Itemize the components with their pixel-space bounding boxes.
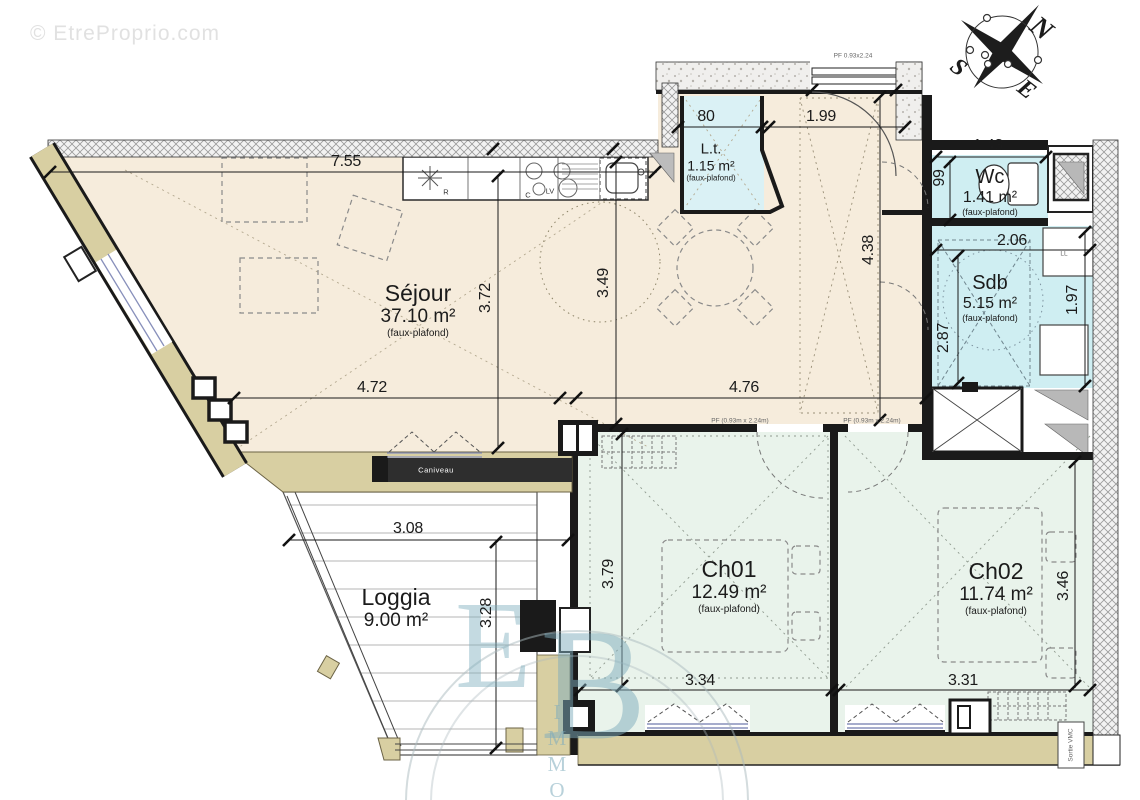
room-name: Loggia (361, 584, 430, 610)
room-area: 12.49 m² (692, 583, 767, 605)
dim-80: 80 (697, 108, 714, 126)
dim-4-76: 4.76 (729, 379, 759, 397)
room-label-lt: L.t. 1.15 m² (faux-plafond) (686, 141, 735, 184)
room-name: Ch01 (692, 556, 767, 582)
washing-machine-label: LL (1060, 251, 1067, 258)
dim-3-49: 3.49 (595, 268, 613, 298)
entry-door-spec-label: PF 0.93x2.24 (834, 53, 873, 60)
floor-plan-page: © EtreProprio.com Séjour 37.10 m² (faux-… (0, 0, 1140, 800)
dim-3-08: 3.08 (393, 520, 423, 538)
room-note: (faux-plafond) (692, 604, 767, 616)
dim-1-99: 1.99 (806, 108, 836, 126)
room-name: Wc (962, 166, 1018, 189)
dim-3-79: 3.79 (600, 559, 618, 589)
room-label-sejour: Séjour 37.10 m² (faux-plafond) (381, 280, 456, 340)
dim-3-31: 3.31 (948, 672, 978, 690)
room-name: Séjour (381, 280, 456, 306)
dim-4-38: 4.38 (860, 235, 878, 265)
room-label-loggia: Loggia 9.00 m² (361, 584, 430, 632)
room-area: 37.10 m² (381, 307, 456, 329)
dim-4-72: 4.72 (357, 379, 387, 397)
room-area: 1.41 m² (962, 189, 1018, 207)
dim-7-55: 7.55 (331, 153, 361, 171)
window-spec-label-2: PF (0.93m x 2.24m) (843, 418, 900, 425)
room-label-ch01: Ch01 12.49 m² (faux-plafond) (692, 556, 767, 616)
room-note: (faux-plafond) (962, 208, 1018, 218)
dim-99: 99 (931, 169, 949, 186)
room-area: 9.00 m² (361, 610, 430, 632)
room-label-ch02: Ch02 11.74 m² (faux-plafond) (959, 558, 1033, 618)
dishwasher-code-label: LV (546, 187, 555, 196)
room-note: (faux-plafond) (962, 314, 1018, 324)
room-name: L.t. (686, 141, 735, 158)
room-area: 11.74 m² (959, 585, 1033, 607)
dim-3-34: 3.34 (685, 672, 715, 690)
site-watermark: © EtreProprio.com (30, 22, 220, 46)
dim-1-43: 1.43 (973, 137, 1003, 155)
room-label-wc: Wc 1.41 m² (faux-plafond) (962, 166, 1018, 218)
room-note: (faux-plafond) (959, 606, 1033, 618)
room-note: (faux-plafond) (381, 328, 456, 340)
room-note: (faux-plafond) (686, 174, 735, 183)
room-name: Sdb (962, 272, 1018, 295)
dim-3-72: 3.72 (477, 283, 495, 313)
room-name: Ch02 (959, 558, 1033, 584)
vmc-label: Sortie VMC (1068, 728, 1075, 761)
dim-2-06: 2.06 (997, 232, 1027, 250)
window-spec-label-1: PF (0.93m x 2.24m) (711, 418, 768, 425)
room-label-sdb: Sdb 5.15 m² (faux-plafond) (962, 272, 1018, 324)
dim-3-28: 3.28 (478, 598, 496, 628)
dim-2-87: 2.87 (935, 323, 953, 353)
room-area: 1.15 m² (686, 158, 735, 174)
dim-1-97: 1.97 (1064, 285, 1082, 315)
room-area: 5.15 m² (962, 295, 1018, 313)
caniveau-label: Caniveau (418, 466, 454, 475)
cooktop-code-label: C (525, 191, 530, 200)
dim-3-46: 3.46 (1055, 571, 1073, 601)
fridge-code-label: R (443, 188, 448, 197)
